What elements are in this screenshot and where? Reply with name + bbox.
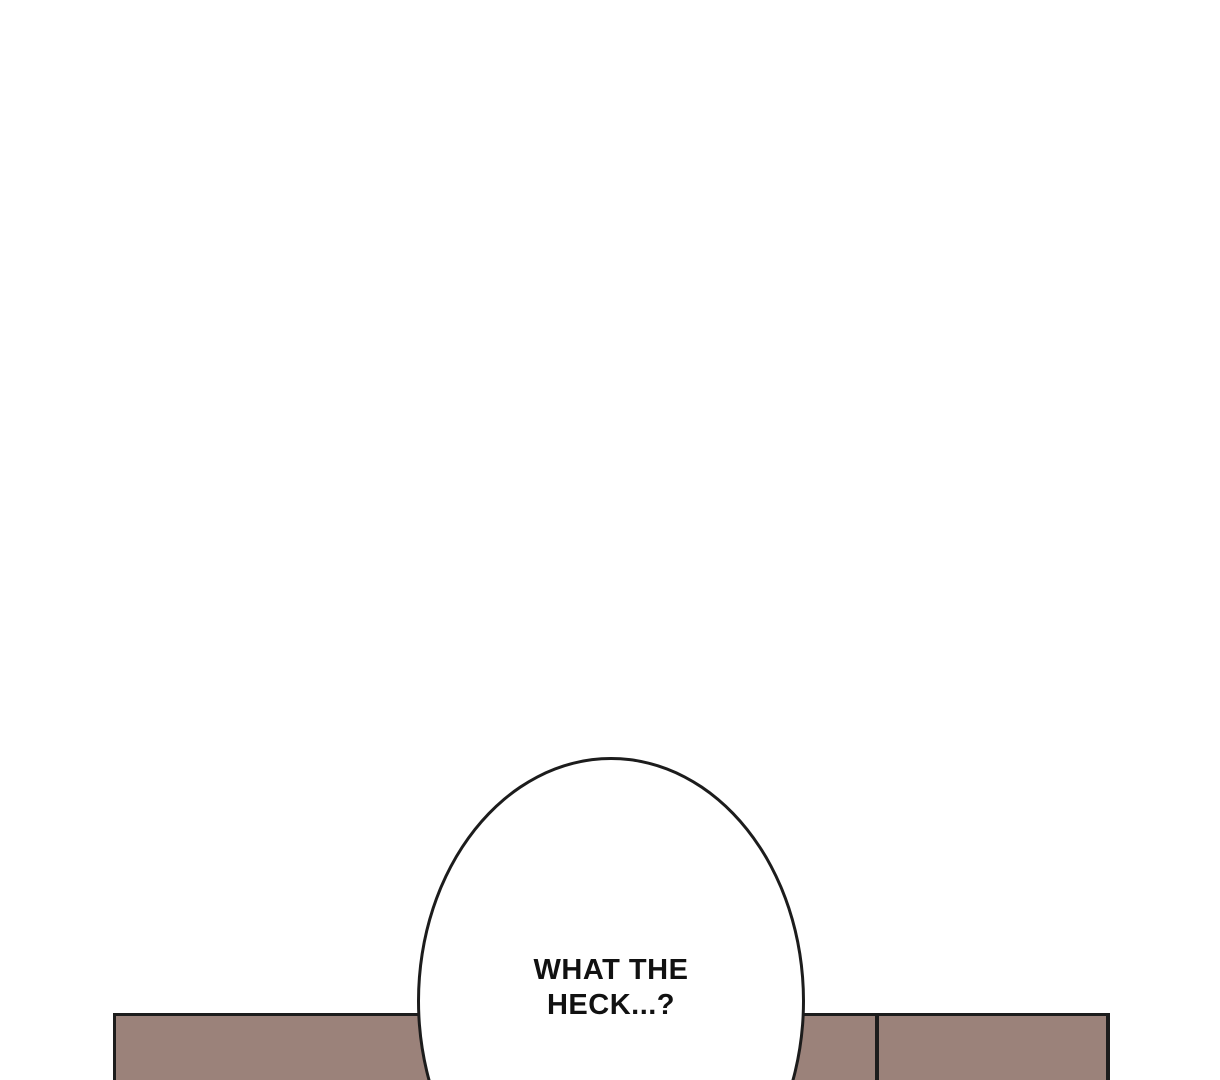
- comic-page: WHAT THE HECK...?: [0, 0, 1220, 1080]
- speech-bubble-text: WHAT THE HECK...?: [420, 953, 802, 1023]
- speech-line-2: HECK...?: [420, 988, 802, 1023]
- speech-line-1: WHAT THE: [420, 953, 802, 988]
- bottom-panel-right: [877, 1013, 1110, 1080]
- speech-bubble: WHAT THE HECK...?: [417, 757, 805, 1080]
